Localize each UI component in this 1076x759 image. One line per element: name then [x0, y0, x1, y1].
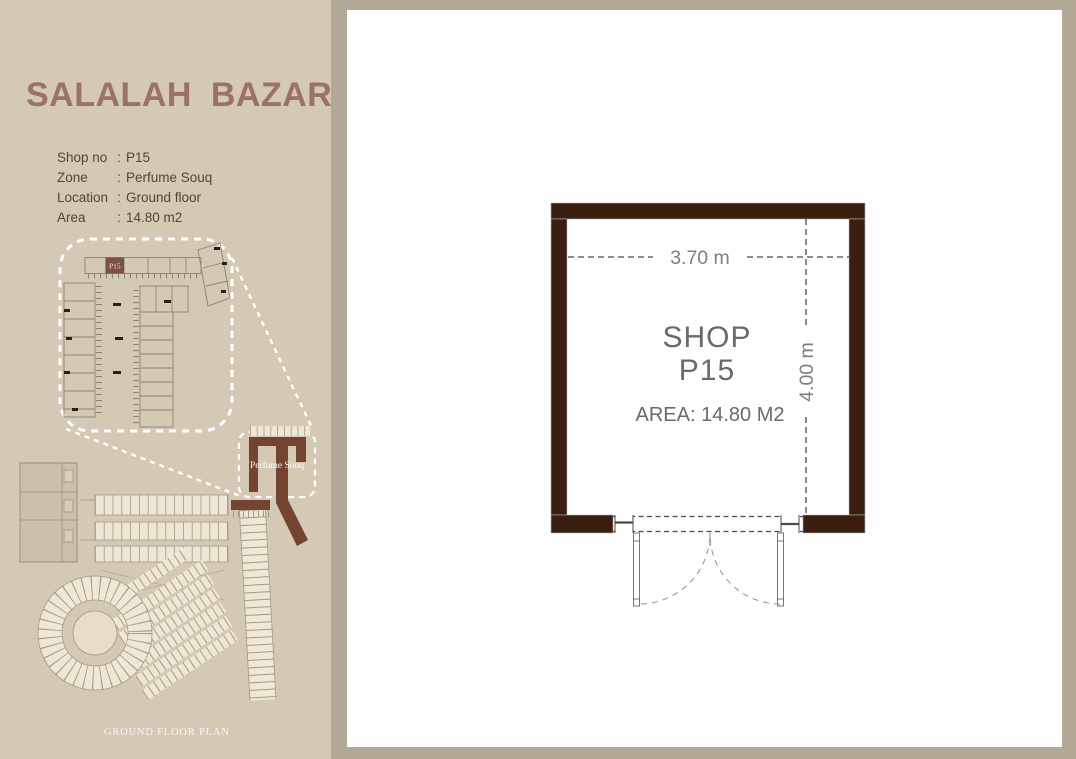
- shop-floor-plan: 3.70 m 4.00 m SHOP P15 AREA: 14.80 M2: [347, 10, 1062, 747]
- site-ring-cluster: [38, 576, 152, 690]
- sidebar: SALALAH BAZAR Shop no : P15 Zone : Perfu…: [0, 0, 331, 759]
- wall-top: [551, 203, 865, 219]
- sidebar-graphics: P15: [0, 0, 331, 759]
- shop-p15-highlight-label: P15: [109, 262, 121, 271]
- door-opening: [613, 517, 803, 532]
- shop-number-label: P15: [679, 354, 735, 387]
- door-jambs: [615, 515, 799, 533]
- site-right-wing: [239, 501, 276, 701]
- door-marks: [64, 247, 227, 411]
- shop-area-label: AREA: 14.80 M2: [636, 404, 785, 426]
- callout-floor-plan: [64, 243, 230, 427]
- wall-right: [849, 219, 865, 515]
- perfume-souq-label: Perfume Souq: [250, 460, 304, 471]
- door-leaves: [634, 533, 784, 606]
- site-plan: Perfume Souq: [20, 431, 310, 701]
- callout-bubble: [60, 239, 232, 431]
- site-building-left: [20, 463, 77, 562]
- door-swing-arcs: [641, 533, 780, 604]
- ground-floor-plan-caption: GROUND FLOOR PLAN: [104, 727, 230, 738]
- plan-panel: 3.70 m 4.00 m SHOP P15 AREA: 14.80 M2: [347, 10, 1062, 747]
- wall-bottom-left: [551, 515, 613, 533]
- wall-left: [551, 219, 567, 515]
- height-dimension-label: 4.00 m: [796, 342, 818, 402]
- wall-bottom-right: [803, 515, 865, 533]
- width-dimension-label: 3.70 m: [670, 247, 730, 269]
- page: SALALAH BAZAR Shop no : P15 Zone : Perfu…: [0, 0, 1076, 759]
- shop-title-label: SHOP: [662, 321, 751, 354]
